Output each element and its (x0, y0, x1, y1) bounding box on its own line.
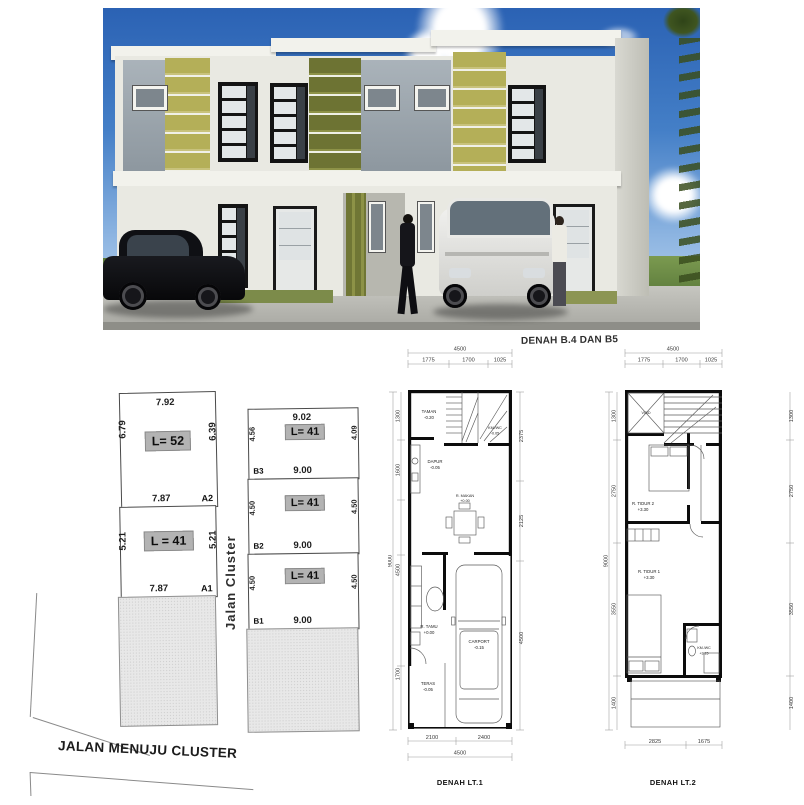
accent-panel-u3 (453, 52, 506, 172)
room-rmakan: R. MAKAN (456, 494, 475, 498)
svg-text:-0.20: -0.20 (424, 415, 434, 420)
lot-id: B1 (253, 617, 263, 626)
lt2-room-labels: VOID R. TIDUR 2 +3.30 R. TIDUR 1 +3.30 K… (632, 411, 711, 656)
room-rtamu: R. TAMU (420, 624, 437, 629)
room-rtidur2: R. TIDUR 2 (632, 501, 655, 506)
lt2-dim-top-3: 1025 (705, 358, 717, 364)
lt1-dim-top-2: 1700 (462, 358, 474, 364)
lot-dim-right: 4.50 (350, 499, 359, 514)
black-car (103, 226, 245, 318)
lot-area-label: L= 41 (285, 568, 326, 585)
lot-area-label: L = 41 (144, 531, 194, 552)
lt1-dim-left-total: 9000 (388, 555, 394, 567)
room-rtidur1: R. TIDUR 1 (638, 569, 661, 574)
lot-b2: 4.50 4.50 L= 41 B2 9.00 (247, 477, 359, 556)
room-kmwc: KM./WC (488, 426, 502, 430)
lot-dim-bottom: 9.00 (293, 465, 312, 476)
lot-id: A2 (201, 493, 213, 503)
lot-dim-bottom: 9.00 (293, 540, 312, 551)
lt2-dim-top-2: 1700 (675, 358, 687, 364)
curb (103, 322, 700, 330)
lt1-dim-bottom-total: 4500 (454, 751, 466, 757)
lt1-dim-right-3: 4500 (519, 632, 525, 644)
gray-panel-u3l (409, 60, 451, 172)
lot-dim-left: 4.50 (248, 501, 257, 516)
svg-text:-0.05: -0.05 (491, 432, 499, 436)
street-label-vertical: Jalan Cluster (223, 520, 238, 630)
reserved-plot-a (118, 595, 218, 727)
svg-text:-0.05: -0.05 (423, 687, 433, 692)
lot-dim-top: 9.02 (293, 412, 312, 423)
lot-dim-bottom: 9.00 (293, 615, 312, 626)
svg-text:+3.30: +3.30 (644, 575, 655, 580)
floor-slab (113, 171, 621, 186)
lot-dim-left: 5.21 (117, 532, 128, 551)
lt1-dim-top-total: 4500 (454, 347, 466, 353)
upper-small-window-u1 (133, 86, 167, 110)
floor-plan-lt1: 4500 1775 1700 1025 9000 1300 1600 4500 … (388, 333, 563, 805)
svg-text:+3.15: +3.15 (699, 652, 708, 656)
lt2-dim-right-4: 1400 (789, 697, 795, 709)
lot-dim-left: 6.79 (117, 420, 128, 439)
lot-area-label: L= 52 (145, 431, 192, 452)
lt1-interior (410, 392, 507, 727)
lot-dim-left: 4.50 (248, 576, 257, 591)
room-dapur: DAPUR (427, 459, 442, 464)
lt2-dim-left-4: 1400 (612, 697, 618, 709)
gray-panel-u2 (361, 60, 409, 172)
lot-a2: 7.92 6.79 6.39 L= 52 7.87 A2 (119, 391, 218, 509)
upper-window-u2 (270, 83, 308, 163)
lt1-dim-top-1: 1775 (422, 358, 434, 364)
roof-unit2 (271, 38, 436, 52)
tree-foliage (663, 8, 700, 38)
lt2-dim-left-total: 9000 (604, 555, 610, 567)
lt2-dim-top-total: 4500 (667, 347, 679, 353)
lot-dim-right: 6.39 (207, 422, 218, 441)
exterior-render (103, 8, 700, 330)
lt1-dim-bottom-2: 2400 (478, 735, 490, 741)
lt2-title: DENAH LT.2 (650, 778, 696, 787)
entry-door-u2 (273, 206, 317, 300)
lt1-dim-left-3: 1700 (396, 668, 402, 680)
side-return-wall (615, 38, 649, 296)
person-standing (549, 216, 571, 312)
upper-small-window-u3 (415, 86, 449, 110)
lot-dim-bottom: 7.87 (150, 583, 169, 594)
tree-branch (679, 38, 700, 288)
lt1-dim-bottom-1: 2100 (426, 735, 438, 741)
lt1-dim-left-inner: 4500 (396, 564, 402, 576)
lot-dim-bottom: 7.87 (152, 493, 171, 504)
lot-area-label: L= 41 (285, 424, 326, 441)
lt1-dim-left-2: 1600 (396, 464, 402, 476)
roof-unit3 (431, 30, 621, 46)
lot-dim-right: 4.09 (350, 425, 359, 440)
room-carport: CARPORT (469, 639, 490, 644)
upper-window-u3 (508, 85, 546, 163)
lt2-dim-top-1: 1775 (638, 358, 650, 364)
floor-plan-lt2: 4500 1775 1700 1025 9000 1300 2750 3550 … (603, 333, 804, 805)
svg-text:+0.00: +0.00 (460, 499, 470, 503)
lot-dim-right: 4.50 (350, 574, 359, 589)
lt2-dim-bottom-2: 1675 (698, 739, 710, 745)
slit-window-mid (369, 202, 385, 252)
lot-dim-left: 4.56 (248, 427, 257, 442)
accent-panel-u1 (165, 58, 210, 172)
road-edge-end (30, 772, 32, 796)
lt1-dim-top-3: 1025 (494, 358, 506, 364)
room-kmwc-lt2: KM./WC (697, 646, 711, 650)
upper-small-window-u2 (365, 86, 399, 110)
upper-window-u1 (218, 82, 258, 162)
lt2-dim-left-1: 1300 (612, 410, 618, 422)
lot-a1: 5.21 5.21 L = 41 7.87 A1 (119, 505, 218, 599)
lot-id: B3 (253, 467, 263, 476)
lt1-dim-right-2: 2125 (519, 515, 525, 527)
road-edge-line (30, 772, 253, 790)
svg-text:-0.15: -0.15 (474, 645, 484, 650)
lot-id: B2 (253, 542, 263, 551)
lt1-room-labels: TAMAN -0.20 KM./WC -0.05 DAPUR -0.05 R. … (420, 409, 502, 692)
street-label-bottom: JALAN MENUJU CLUSTER (58, 738, 238, 761)
svg-text:+3.30: +3.30 (638, 507, 649, 512)
white-suv (435, 190, 561, 312)
lt2-dim-right-2: 2750 (789, 485, 795, 497)
lot-b3: 9.02 4.56 4.09 L= 41 B3 9.00 (248, 407, 360, 481)
gray-panel-u1 (123, 60, 165, 172)
lt2-dim-right-1: 1300 (789, 410, 795, 422)
reserved-plot-b (246, 627, 359, 733)
boundary-line-left (30, 593, 37, 717)
site-plan: 7.92 6.79 6.39 L= 52 7.87 A2 5.21 5.21 L… (20, 380, 380, 804)
svg-text:+0.00: +0.00 (424, 630, 435, 635)
lot-dim-right: 5.21 (207, 530, 218, 549)
accent-panel-u2 (309, 58, 361, 172)
olive-wall-strip (346, 193, 366, 296)
lot-dim-top: 7.92 (156, 397, 175, 408)
lt2-dim-left-2: 2750 (612, 485, 618, 497)
lot-area-label: L= 41 (285, 495, 326, 512)
room-taman: TAMAN (422, 409, 437, 414)
lt2-dim-left-3: 3550 (612, 603, 618, 615)
person-walking (395, 214, 421, 318)
lot-id: A1 (201, 583, 213, 593)
lt1-dim-left-1: 1300 (396, 410, 402, 422)
room-void: VOID (641, 411, 650, 415)
lot-b1: 4.50 4.50 L= 41 B1 9.00 (247, 552, 359, 631)
lt2-dim-right-3: 3550 (789, 603, 795, 615)
lt2-dim-bottom-1: 2825 (649, 739, 661, 745)
svg-text:-0.05: -0.05 (430, 465, 440, 470)
lt1-title: DENAH LT.1 (437, 778, 483, 787)
lt1-dim-right-1: 2375 (519, 430, 525, 442)
room-teras: TERAS (421, 681, 435, 686)
